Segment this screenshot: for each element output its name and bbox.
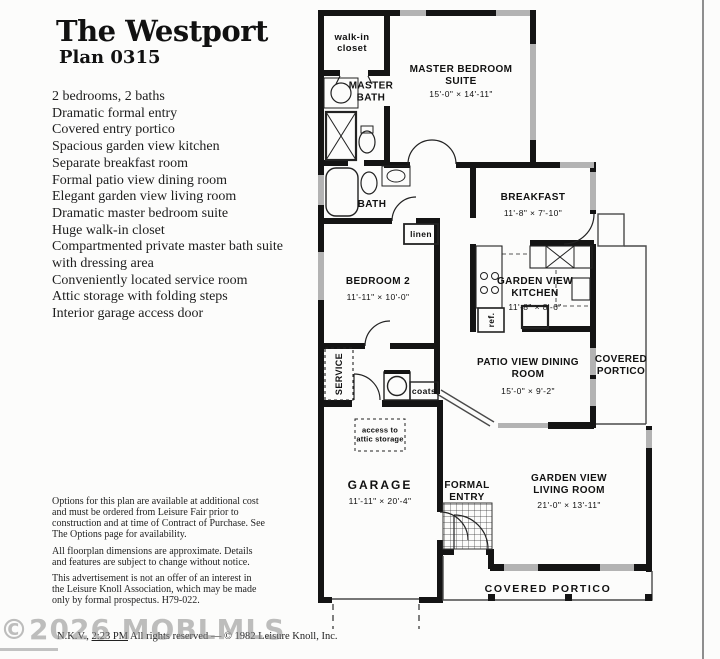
service-area-fixtures xyxy=(325,224,438,451)
sink-counter xyxy=(530,246,592,268)
room-label-kitchen: GARDEN VIEW KITCHEN xyxy=(485,276,585,300)
tile-floor xyxy=(443,503,492,549)
toilet xyxy=(361,172,377,194)
room-label-master-bedroom: MASTER BEDROOM SUITE xyxy=(405,64,517,88)
room-label-bedroom2: BEDROOM 2 xyxy=(346,276,410,288)
room-label-formal-entry: FORMAL ENTRY xyxy=(437,480,497,504)
room-dims-garage: 11'-11" × 20'-4" xyxy=(349,495,412,507)
sink xyxy=(387,170,405,182)
bedroom2-door xyxy=(365,321,390,346)
room-label-garage: GARAGE xyxy=(348,479,413,491)
master-bedroom-double-door xyxy=(408,140,432,164)
label-attic-access: access to attic storage xyxy=(356,426,404,443)
room-dims-breakfast: 11'-8" × 7'-10" xyxy=(504,207,562,219)
entry-bay-window xyxy=(437,394,490,426)
room-dims-dining: 15'-0" × 9'-2" xyxy=(501,385,555,397)
room-label-walkin-closet: walk-in closet xyxy=(323,32,381,54)
advertisement-page: The Westport Plan 0315 2 bedrooms, 2 bat… xyxy=(0,0,720,659)
room-label-living: GARDEN VIEW LIVING ROOM xyxy=(513,473,625,497)
master-bedroom-double-door xyxy=(432,140,456,164)
photo-edge xyxy=(0,648,58,651)
room-label-covered-portico-bottom: COVERED PORTICO xyxy=(485,583,612,595)
room-dims-kitchen: 11'-8" × 8'-6" xyxy=(508,301,561,313)
room-label-covered-portico-side: COVERED PORTICO xyxy=(586,354,656,378)
room-label-linen: linen xyxy=(410,228,432,240)
formal-entry-floor xyxy=(443,503,492,549)
bathtub xyxy=(326,168,358,216)
room-label-bath: BATH xyxy=(358,199,387,211)
bath-door xyxy=(392,197,416,221)
toilet xyxy=(359,131,375,153)
water-heater xyxy=(388,377,407,396)
room-dims-bedroom2: 11'-11" × 10'-0" xyxy=(347,291,410,303)
room-label-coats: coats xyxy=(412,385,436,397)
photo-edge xyxy=(702,0,704,659)
room-label-dining: PATIO VIEW DINING ROOM xyxy=(472,357,584,381)
room-label-master-bath: MASTER BATH xyxy=(343,81,399,104)
entry-bay-window xyxy=(441,390,494,422)
room-dims-master-bedroom: 15'-0" × 14'-11" xyxy=(429,88,493,100)
garage-access-door xyxy=(354,374,380,400)
room-label-service: SERVICE xyxy=(333,353,345,395)
room-dims-living: 21'-0" × 13'-11" xyxy=(537,499,601,511)
label-refrigerator: ref. xyxy=(485,313,497,328)
entry-stoop xyxy=(598,214,624,246)
room-label-breakfast: BREAKFAST xyxy=(501,192,566,204)
breakfast-exterior-door xyxy=(564,214,594,244)
vanity-counter xyxy=(382,166,410,186)
